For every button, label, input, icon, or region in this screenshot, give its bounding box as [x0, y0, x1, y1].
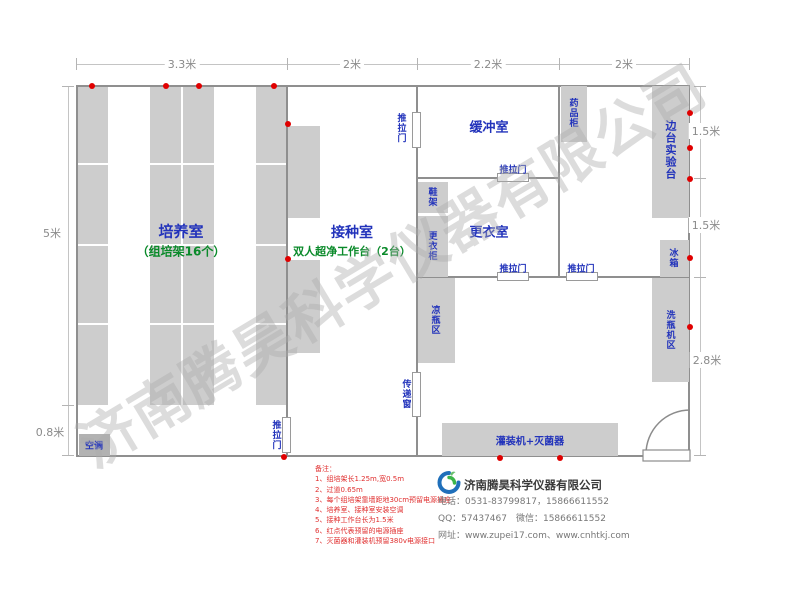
label-fridge: 冰箱 — [667, 248, 680, 268]
dim-right-3: 2.8米 — [690, 352, 725, 368]
power-socket-dot — [285, 121, 291, 127]
label-sliding-door-1: 推拉门 — [395, 113, 408, 143]
label-sliding-door-5: 推拉门 — [270, 420, 283, 450]
dimension-tick — [694, 455, 706, 456]
floor-plan-canvas: 3.3米 2米 2.2米 2米 5米 0.8米 1.5米 1.5米 2.8米 — [0, 0, 800, 600]
company-logo — [437, 470, 461, 496]
company-website: 网址：www.zupei17.com、www.cnhtkj.com — [438, 528, 630, 541]
clean-workbench-2 — [288, 260, 320, 353]
room-label-changing: 更衣室 — [469, 222, 508, 241]
power-socket-dot — [89, 83, 95, 89]
label-sliding-door-3: 推拉门 — [499, 262, 526, 275]
power-socket-dot — [557, 455, 563, 461]
company-phone: 电话：0531-83799817，15866611552 — [438, 494, 609, 507]
label-sliding-door-4: 推拉门 — [567, 262, 594, 275]
dimension-tick — [694, 86, 706, 87]
wall-changing-bottom — [416, 276, 690, 278]
dimension-tick — [287, 58, 288, 70]
room-sublabel-inoculation: 双人超净工作台（2台） — [293, 243, 411, 259]
power-socket-dot — [687, 110, 693, 116]
sliding-door-buffer — [412, 112, 421, 148]
power-socket-dot — [497, 455, 503, 461]
dim-top-4: 2米 — [612, 56, 636, 72]
room-label-buffer: 缓冲室 — [469, 117, 508, 136]
label-shoe-rack: 鞋架 — [426, 187, 439, 207]
notes-title: 备注： — [315, 464, 451, 474]
dimension-tick — [417, 58, 418, 70]
sliding-door-cultivation — [282, 417, 291, 453]
note-line: 3、每个组培架靠墙距地30cm预留电源插座 — [315, 495, 451, 505]
dimension-tick — [559, 58, 560, 70]
notes-block: 备注： 1、组培架长1.25m,宽0.5m 2、过道0.65m 3、每个组培架靠… — [315, 464, 451, 546]
power-socket-dot — [285, 256, 291, 262]
entry-door-arc — [646, 410, 690, 454]
power-socket-dot — [687, 255, 693, 261]
dimension-tick — [694, 277, 706, 278]
clean-workbench-1 — [288, 126, 320, 218]
room-label-cultivation: 培养室 — [158, 221, 203, 242]
room-sublabel-cultivation: （组培架16个） — [137, 243, 226, 260]
power-socket-dot — [687, 324, 693, 330]
dimension-tick — [689, 58, 690, 70]
wall-buffer-changing — [416, 177, 560, 179]
dim-right-1: 1.5米 — [689, 123, 724, 139]
power-socket-dot — [196, 83, 202, 89]
wall-middle-right — [558, 85, 560, 278]
room-label-inoculation: 接种室 — [331, 222, 373, 242]
note-line: 1、组培架长1.25m,宽0.5m — [315, 474, 451, 484]
transfer-window — [412, 372, 421, 417]
dim-top-2: 2米 — [340, 56, 364, 72]
dim-right-2: 1.5米 — [689, 217, 724, 233]
dimension-tick — [694, 178, 706, 179]
power-socket-dot — [163, 83, 169, 89]
dimension-line-right — [700, 86, 701, 456]
note-line: 5、接种工作台长为1.5米 — [315, 515, 451, 525]
power-socket-dot — [687, 176, 693, 182]
label-medicine-cabinet: 药品柜 — [567, 98, 580, 128]
dim-left-height: 5米 — [40, 225, 64, 241]
dimension-tick — [62, 405, 74, 406]
label-cool-bottle-area: 凉瓶区 — [429, 305, 442, 335]
dimension-line-left — [68, 86, 69, 456]
company-qq-wechat: QQ：57437467 微信：15866611552 — [438, 511, 606, 524]
power-socket-dot — [271, 83, 277, 89]
dimension-tick — [62, 455, 74, 456]
label-sliding-door-2: 推拉门 — [499, 163, 526, 176]
power-socket-dot — [281, 454, 287, 460]
label-transfer-window: 传递窗 — [400, 379, 413, 409]
label-bottle-washer-area: 洗瓶机区 — [664, 310, 677, 350]
dim-left-aisle: 0.8米 — [33, 424, 68, 440]
dim-top-3: 2.2米 — [471, 56, 506, 72]
note-line: 6、红点代表预留的电源插座 — [315, 526, 451, 536]
power-socket-dot — [687, 145, 693, 151]
label-wardrobe: 更衣柜 — [426, 231, 439, 261]
note-line: 2、过道0.65m — [315, 485, 451, 495]
note-line: 4、培养室、接种室安装空调 — [315, 505, 451, 515]
dimension-tick — [76, 58, 77, 70]
company-name: 济南腾昊科学仪器有限公司 — [464, 477, 602, 493]
note-line: 7、灭菌器和灌装机预留380v电源接口 — [315, 536, 451, 546]
dimension-tick — [62, 86, 74, 87]
room-label-side-bench: 边台实验台 — [662, 120, 678, 180]
culture-rack-left — [78, 87, 108, 405]
culture-rack-right — [256, 87, 286, 405]
label-filling-machine: 灌装机+灭菌器 — [496, 433, 564, 448]
dim-top-1: 3.3米 — [165, 56, 200, 72]
label-air-conditioner: 空调 — [85, 439, 103, 452]
